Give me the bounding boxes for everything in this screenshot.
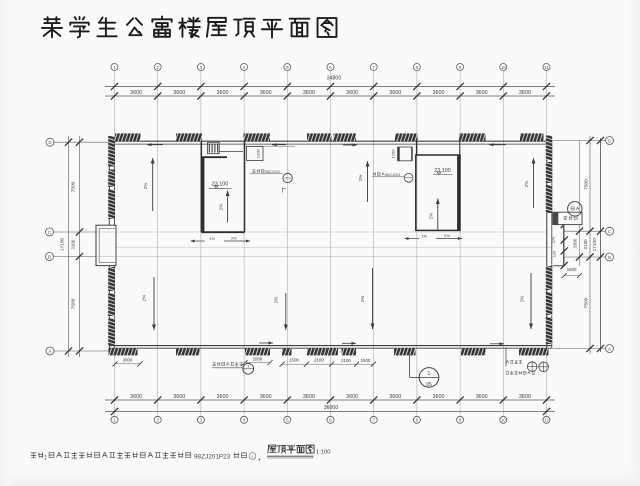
svg-text:11: 11 (544, 418, 549, 423)
svg-text:1%: 1% (210, 237, 216, 241)
svg-text:1: 1 (428, 371, 431, 377)
svg-text:3600: 3600 (519, 90, 531, 96)
svg-text:34800: 34800 (327, 76, 342, 82)
svg-text:3600: 3600 (389, 394, 401, 400)
svg-text:7500: 7500 (71, 181, 77, 192)
svg-text:3600: 3600 (346, 90, 358, 96)
svg-text:3600: 3600 (303, 90, 315, 96)
svg-text:2%: 2% (360, 296, 365, 303)
svg-text:10: 10 (501, 65, 506, 70)
svg-text:2%: 2% (444, 234, 450, 238)
svg-text:3600: 3600 (519, 394, 531, 400)
svg-text:2%: 2% (219, 204, 224, 211)
svg-text:3600: 3600 (433, 90, 445, 96)
svg-text:10: 10 (501, 418, 506, 423)
svg-text:36000: 36000 (324, 405, 339, 411)
svg-text:05: 05 (426, 382, 432, 388)
svg-text:3600: 3600 (130, 394, 142, 400)
svg-text:7500: 7500 (71, 298, 77, 309)
svg-text:2%: 2% (143, 183, 148, 190)
svg-text:B: B (48, 254, 51, 259)
svg-text:1: 1 (247, 365, 249, 369)
svg-text:3600: 3600 (433, 394, 445, 400)
svg-text:D: D (608, 138, 611, 143)
svg-text:2%: 2% (520, 296, 525, 303)
svg-text:17100: 17100 (60, 238, 66, 252)
svg-text:98ZJ201P23: 98ZJ201P23 (194, 454, 231, 461)
svg-text:1500: 1500 (361, 358, 371, 363)
svg-text:3600: 3600 (303, 394, 315, 400)
svg-text:A: A (608, 346, 611, 351)
svg-text:2000: 2000 (123, 357, 133, 362)
svg-text:1: 1 (251, 455, 253, 459)
svg-text:23.100: 23.100 (434, 168, 451, 174)
svg-text:C: C (608, 229, 611, 234)
svg-text:1:100: 1:100 (316, 449, 331, 455)
svg-text:3600: 3600 (476, 90, 488, 96)
svg-text:17100: 17100 (592, 238, 598, 252)
svg-text:2%: 2% (231, 237, 237, 241)
svg-text:1%: 1% (422, 235, 428, 239)
svg-text:2%: 2% (429, 213, 434, 220)
svg-text:3600: 3600 (260, 90, 272, 96)
svg-text:2%: 2% (142, 295, 147, 302)
svg-text:2%: 2% (358, 175, 363, 182)
svg-text:98ZJ201: 98ZJ201 (265, 169, 281, 174)
svg-text:B: B (608, 255, 611, 260)
svg-text:7500: 7500 (584, 179, 590, 190)
svg-text:98ZJ201: 98ZJ201 (385, 172, 401, 177)
svg-text:2100: 2100 (341, 358, 351, 363)
svg-text:2100: 2100 (71, 239, 76, 249)
svg-text:A: A (49, 349, 52, 354)
svg-text:3600: 3600 (389, 90, 401, 96)
svg-text:3600: 3600 (346, 394, 358, 400)
svg-text:2%: 2% (524, 181, 529, 188)
svg-text:2100: 2100 (314, 358, 324, 363)
svg-text:3600: 3600 (476, 394, 488, 400)
svg-text:3600: 3600 (217, 90, 229, 96)
svg-text:2000: 2000 (253, 357, 263, 362)
svg-text:3600: 3600 (173, 394, 185, 400)
svg-text:2%: 2% (274, 297, 279, 304)
svg-text:11: 11 (544, 65, 549, 70)
svg-text:3600: 3600 (173, 90, 185, 96)
svg-text:D: D (48, 140, 51, 145)
svg-text:23.100: 23.100 (212, 182, 229, 188)
svg-text:C: C (48, 230, 51, 235)
svg-text:3600: 3600 (217, 394, 229, 400)
svg-text:2100: 2100 (583, 239, 588, 249)
svg-text:1200: 1200 (256, 149, 261, 159)
svg-text:120: 120 (552, 250, 557, 257)
svg-text:3300: 3300 (573, 238, 578, 248)
svg-text:3600: 3600 (260, 394, 272, 400)
svg-text:1500: 1500 (289, 358, 299, 363)
svg-text:1200: 1200 (390, 149, 395, 159)
svg-text:7500: 7500 (584, 297, 590, 308)
svg-text:3600: 3600 (130, 90, 142, 96)
svg-text:1500: 1500 (567, 267, 577, 272)
